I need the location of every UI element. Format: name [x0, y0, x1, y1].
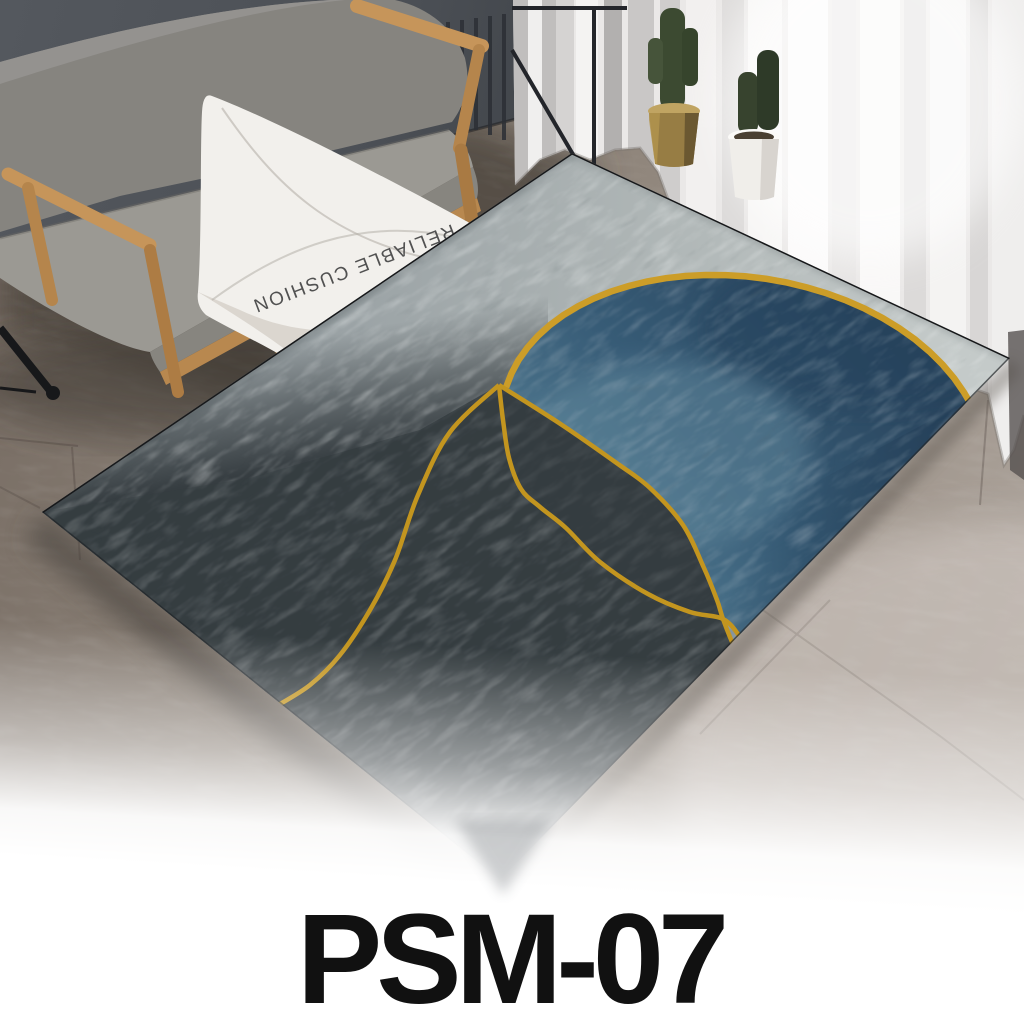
- svg-text:PSM-07: PSM-07: [297, 888, 724, 1024]
